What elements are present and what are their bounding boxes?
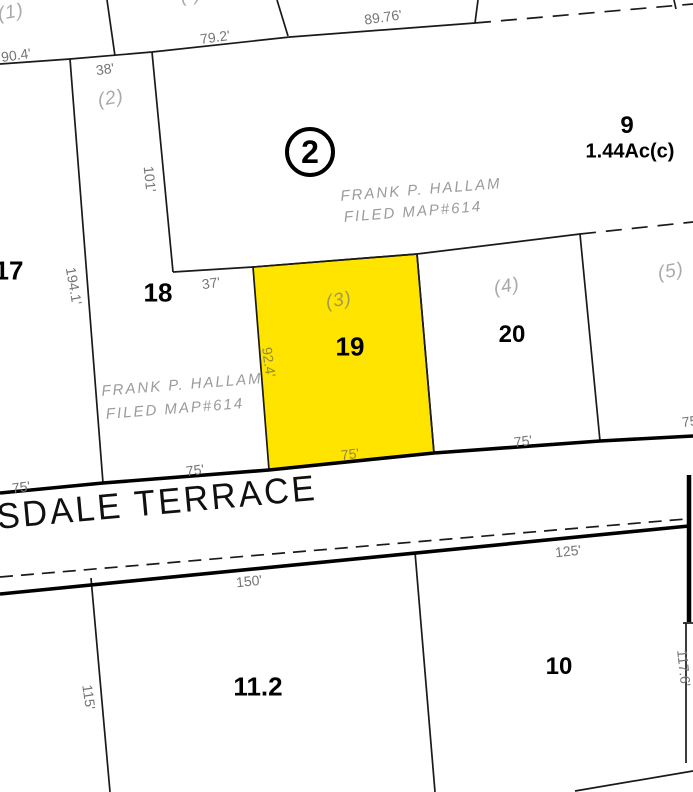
parcel-9-area: 1.44Ac(c): [586, 141, 675, 164]
dim-150: 150': [235, 572, 263, 591]
parcel-label-18: 18: [144, 278, 173, 309]
dim-75-d: 75': [513, 432, 533, 450]
parcel-label-20: 20: [499, 321, 526, 349]
parcel-label-9: 9: [620, 112, 633, 140]
block-number-badge: 2: [285, 127, 335, 177]
lot-ref-5: (5): [656, 259, 686, 285]
street-edge-lines: [0, 436, 693, 622]
parcel-label-17: 17: [0, 256, 23, 287]
lot-ref-3: (3): [324, 288, 354, 314]
dim-101: 101': [141, 165, 160, 193]
dim-37: 37': [201, 274, 221, 292]
lot-ref-1: (1): [0, 0, 26, 26]
dim-75-e: 75': [681, 412, 693, 430]
dim-38: 38': [95, 60, 115, 78]
parcel-label-11-2: 11.2: [233, 672, 282, 703]
parcel-label-19: 19: [336, 332, 365, 363]
dim-75-c: 75': [340, 445, 360, 463]
lot-ref-2: (2): [96, 86, 126, 112]
dim-117-6: 117.6': [674, 649, 693, 687]
lot-ref-4: (4): [492, 274, 522, 300]
tax-parcel-map: (1) ( ) (2) (3) (4) (5) 90.4' 79.2' 89.7…: [0, 0, 693, 792]
dim-125: 125': [554, 542, 582, 561]
parcel-label-10: 10: [546, 653, 573, 681]
dim-115: 115': [79, 684, 98, 711]
